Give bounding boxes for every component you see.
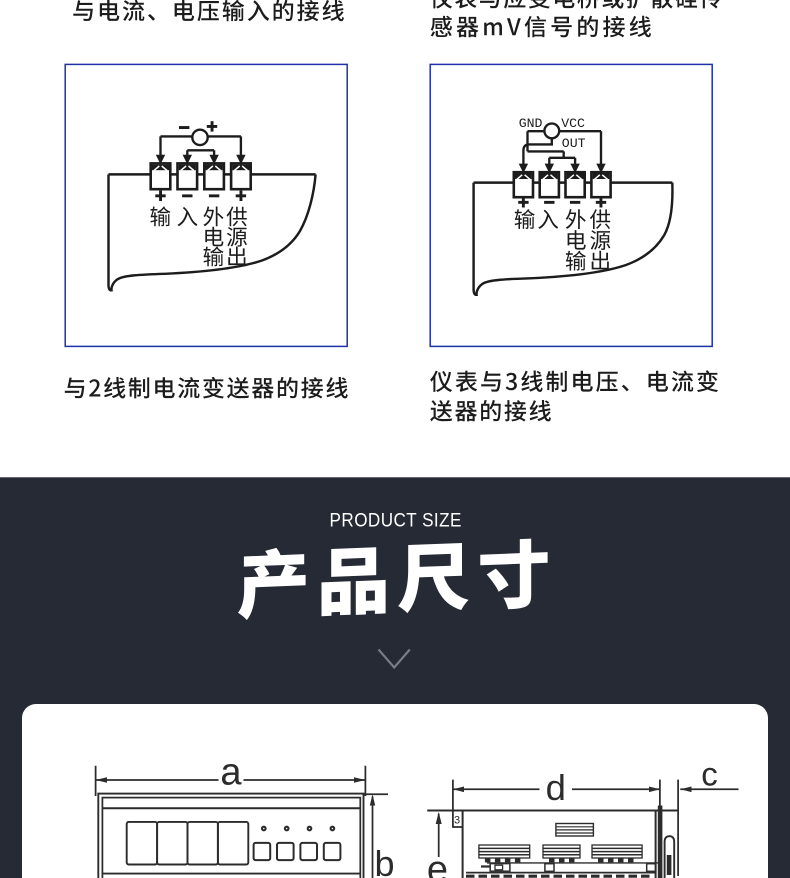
svg-text:a: a [220,752,242,794]
svg-text:PRODUCT SIZE: PRODUCT SIZE [330,510,462,531]
svg-text:b: b [375,843,395,878]
svg-text:GND: GND [519,116,543,131]
svg-text:OUT: OUT [562,136,586,151]
svg-text:3: 3 [454,814,460,826]
svg-text:VCC: VCC [561,116,585,131]
svg-text:c: c [701,755,718,792]
svg-text:d: d [546,767,566,808]
svg-text:e: e [427,849,448,878]
